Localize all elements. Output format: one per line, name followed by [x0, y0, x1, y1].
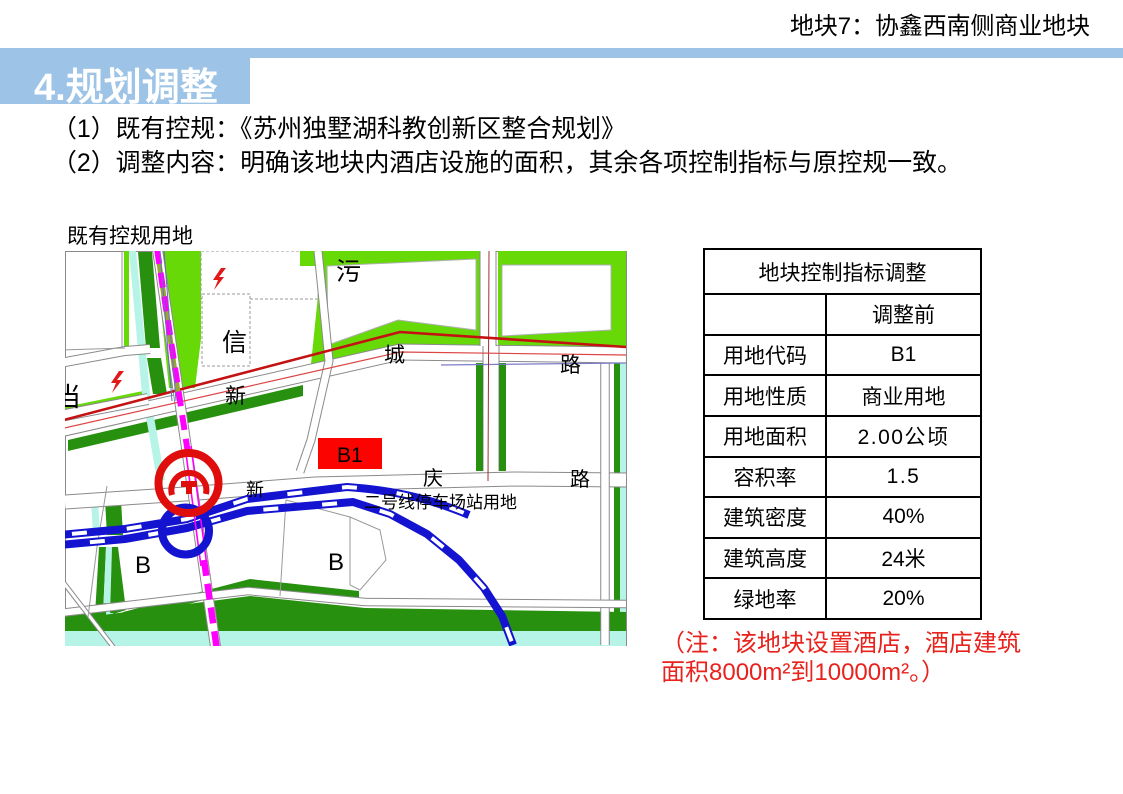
svg-text:B: B: [135, 552, 151, 579]
svg-text:路: 路: [560, 354, 581, 377]
svg-text:B1: B1: [337, 444, 363, 467]
svg-text:污: 污: [336, 258, 361, 286]
svg-text:当: 当: [65, 382, 81, 412]
svg-text:新: 新: [246, 480, 264, 500]
svg-text:城: 城: [384, 344, 405, 367]
svg-text:庆: 庆: [423, 467, 443, 490]
svg-text:B: B: [328, 549, 344, 576]
svg-text:信: 信: [222, 329, 247, 357]
svg-text:新: 新: [225, 385, 246, 408]
svg-text:路: 路: [570, 468, 590, 491]
svg-text:二号线停车场站用地: 二号线停车场站用地: [364, 493, 517, 512]
